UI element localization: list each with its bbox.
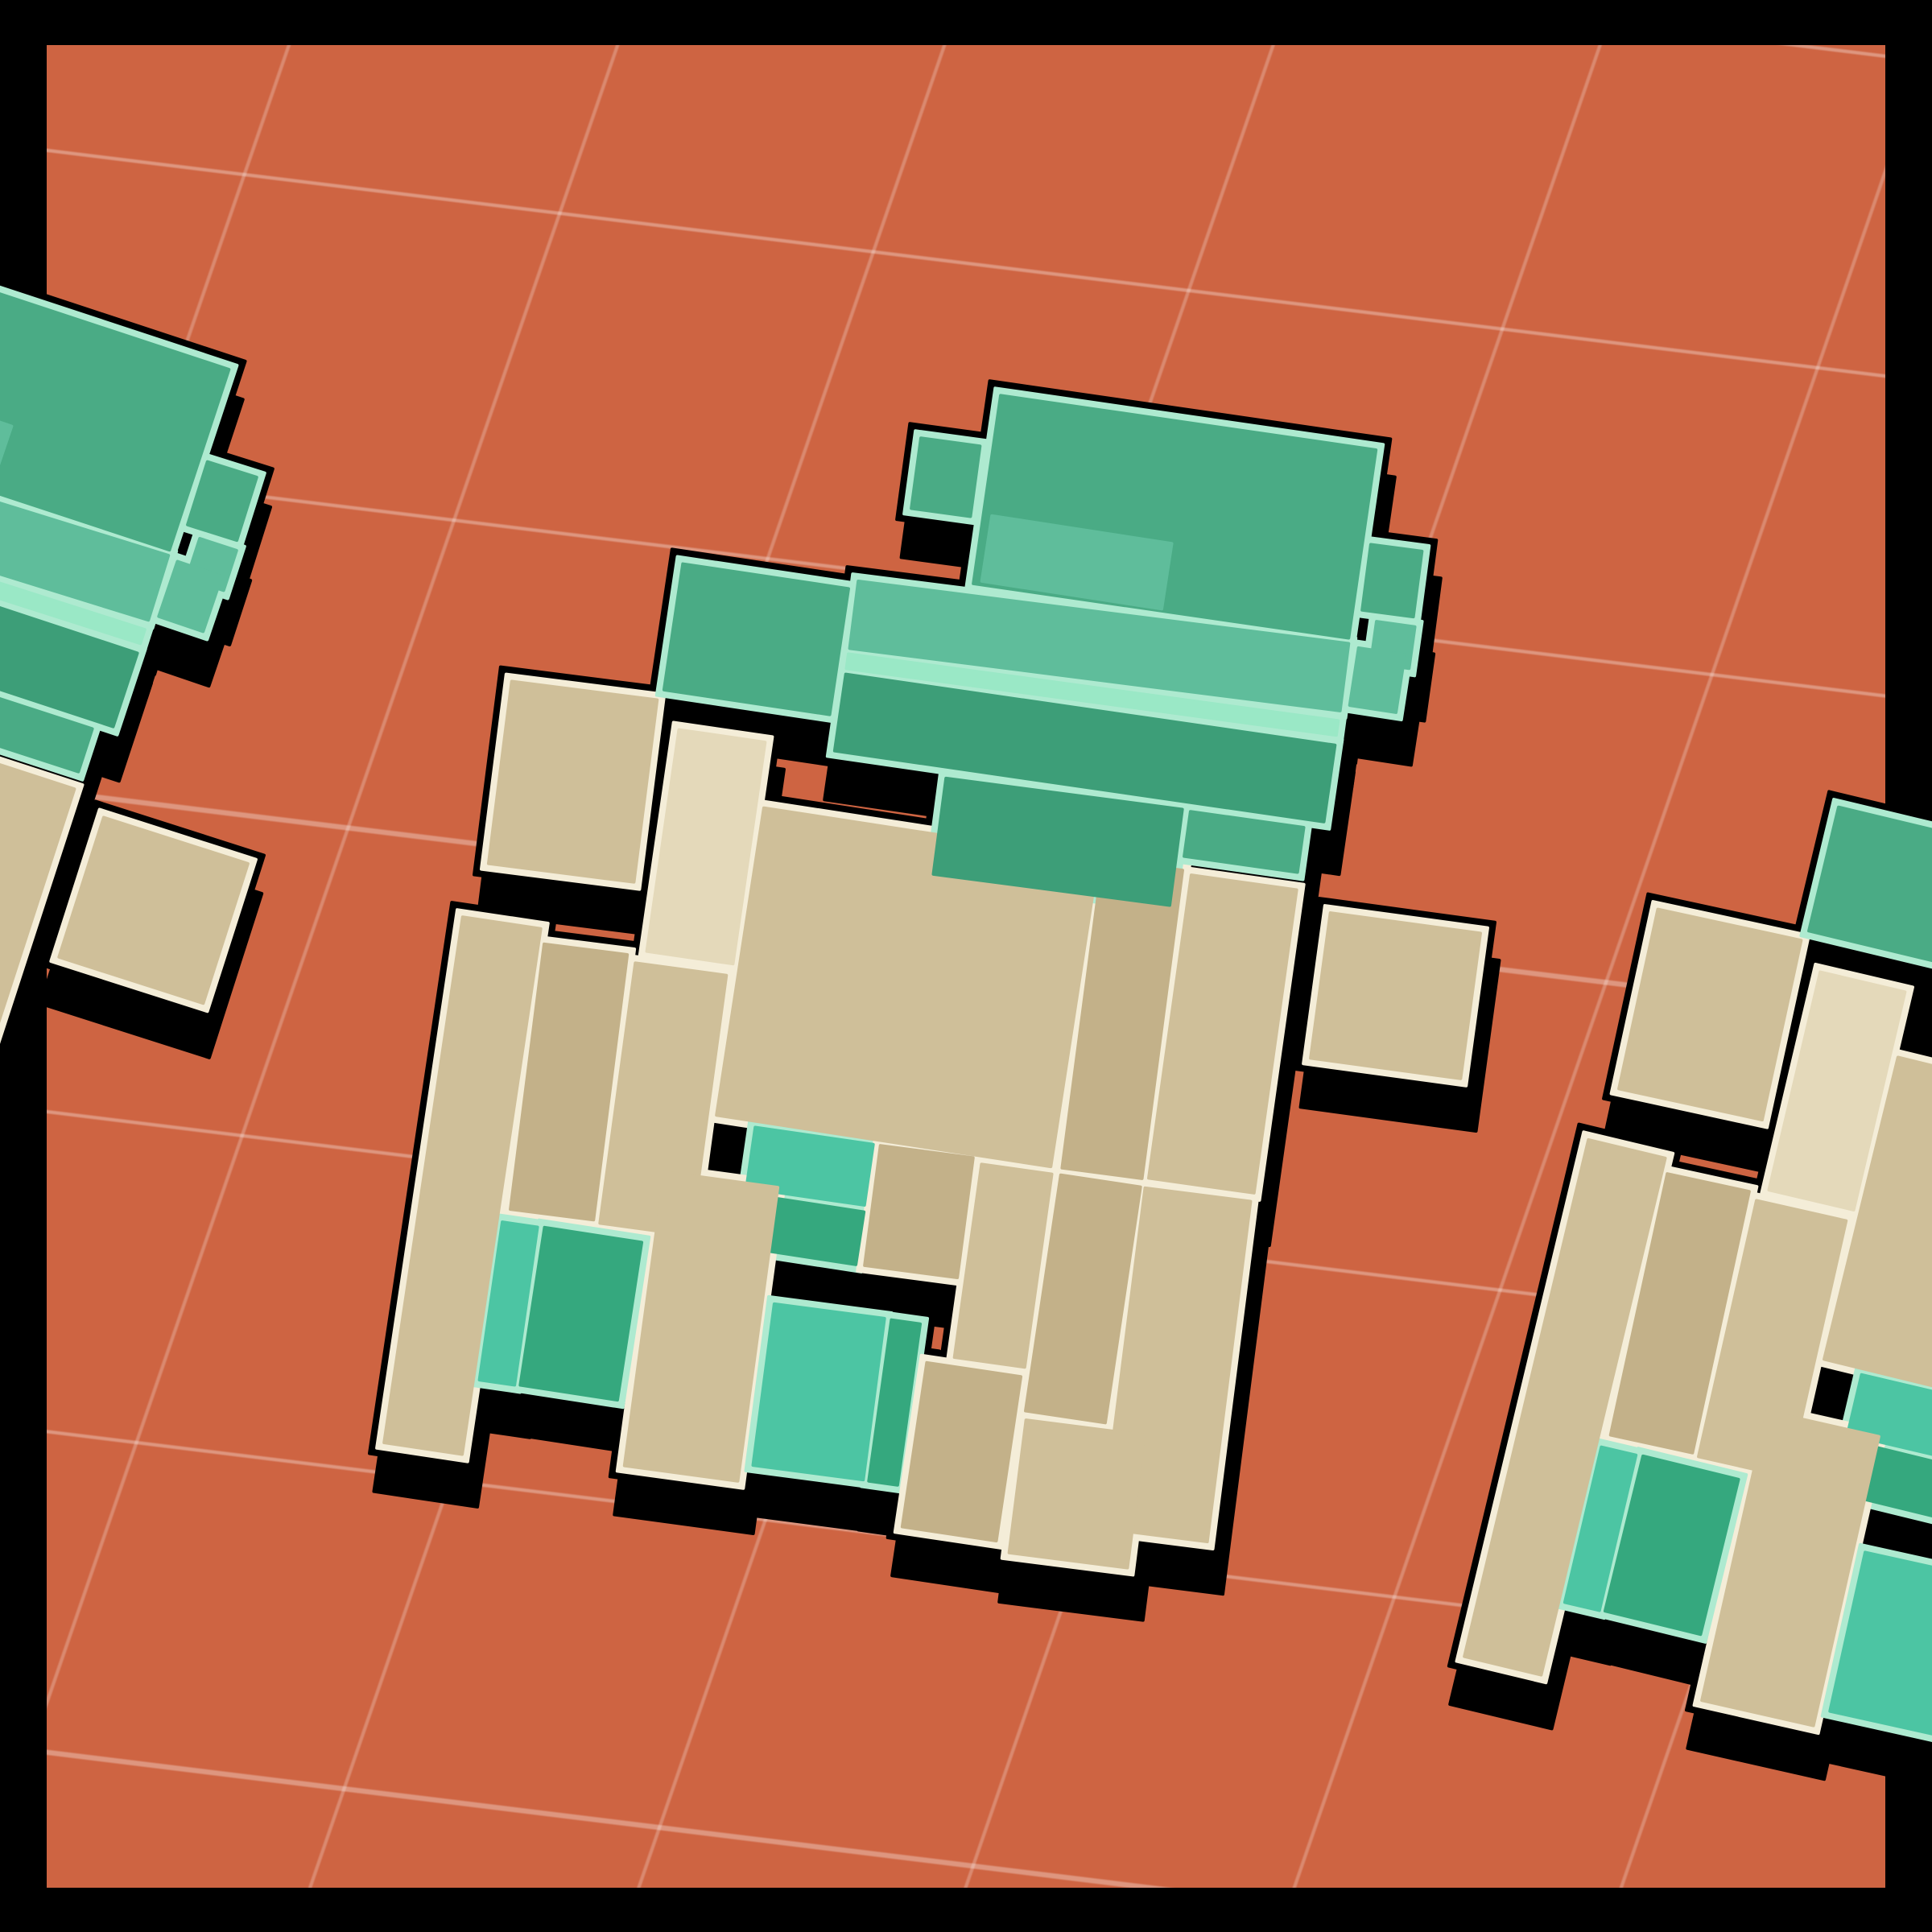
- head-step-a-block: [1360, 543, 1424, 618]
- eye-side-block: [863, 1144, 975, 1279]
- brim-block: [663, 562, 851, 716]
- sprite-center: [366, 320, 1550, 1628]
- bottom-right-block: [1007, 1418, 1146, 1570]
- side-right-block: [1309, 911, 1482, 1080]
- band-cap-block: [1348, 646, 1406, 715]
- ear-block: [910, 436, 982, 518]
- artwork-stage: [0, 0, 1932, 1932]
- foot-right-block: [751, 1302, 886, 1482]
- side-left-block: [487, 679, 659, 884]
